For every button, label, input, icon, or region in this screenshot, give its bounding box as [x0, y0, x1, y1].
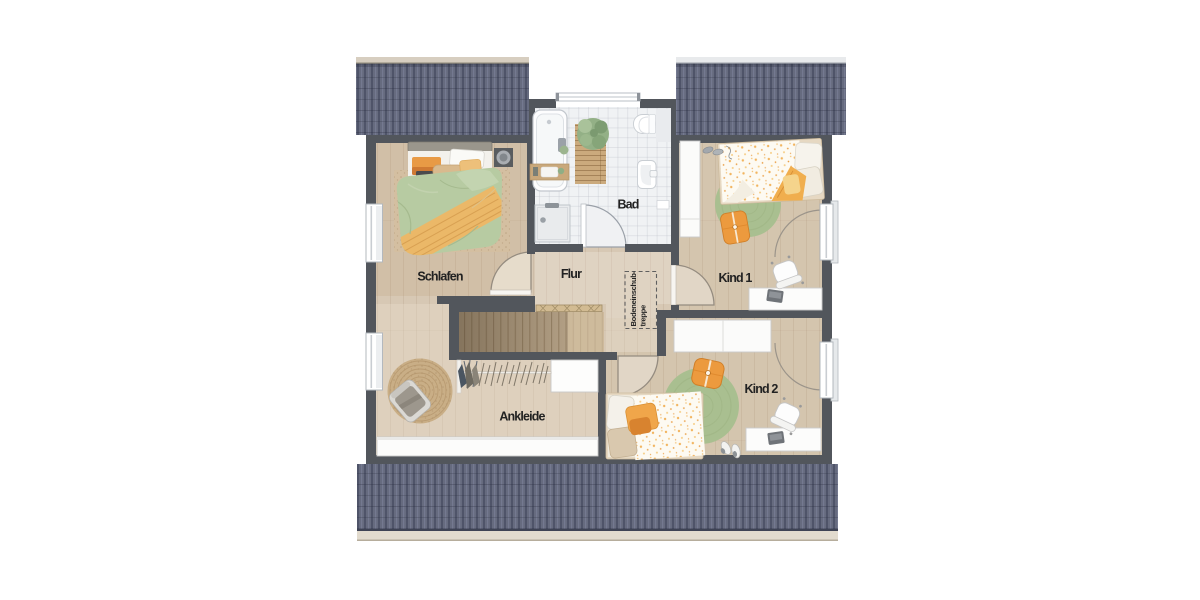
svg-text:Flur: Flur — [561, 267, 582, 281]
svg-text:Schlafen: Schlafen — [417, 270, 463, 284]
svg-text:Bodeneinschub-: Bodeneinschub- — [629, 270, 638, 326]
svg-text:Kind 2: Kind 2 — [744, 382, 778, 396]
svg-text:Bad: Bad — [617, 198, 638, 212]
svg-text:Ankleide: Ankleide — [499, 410, 545, 424]
svg-text:Kind 1: Kind 1 — [718, 271, 752, 285]
svg-text:treppe: treppe — [639, 305, 648, 326]
